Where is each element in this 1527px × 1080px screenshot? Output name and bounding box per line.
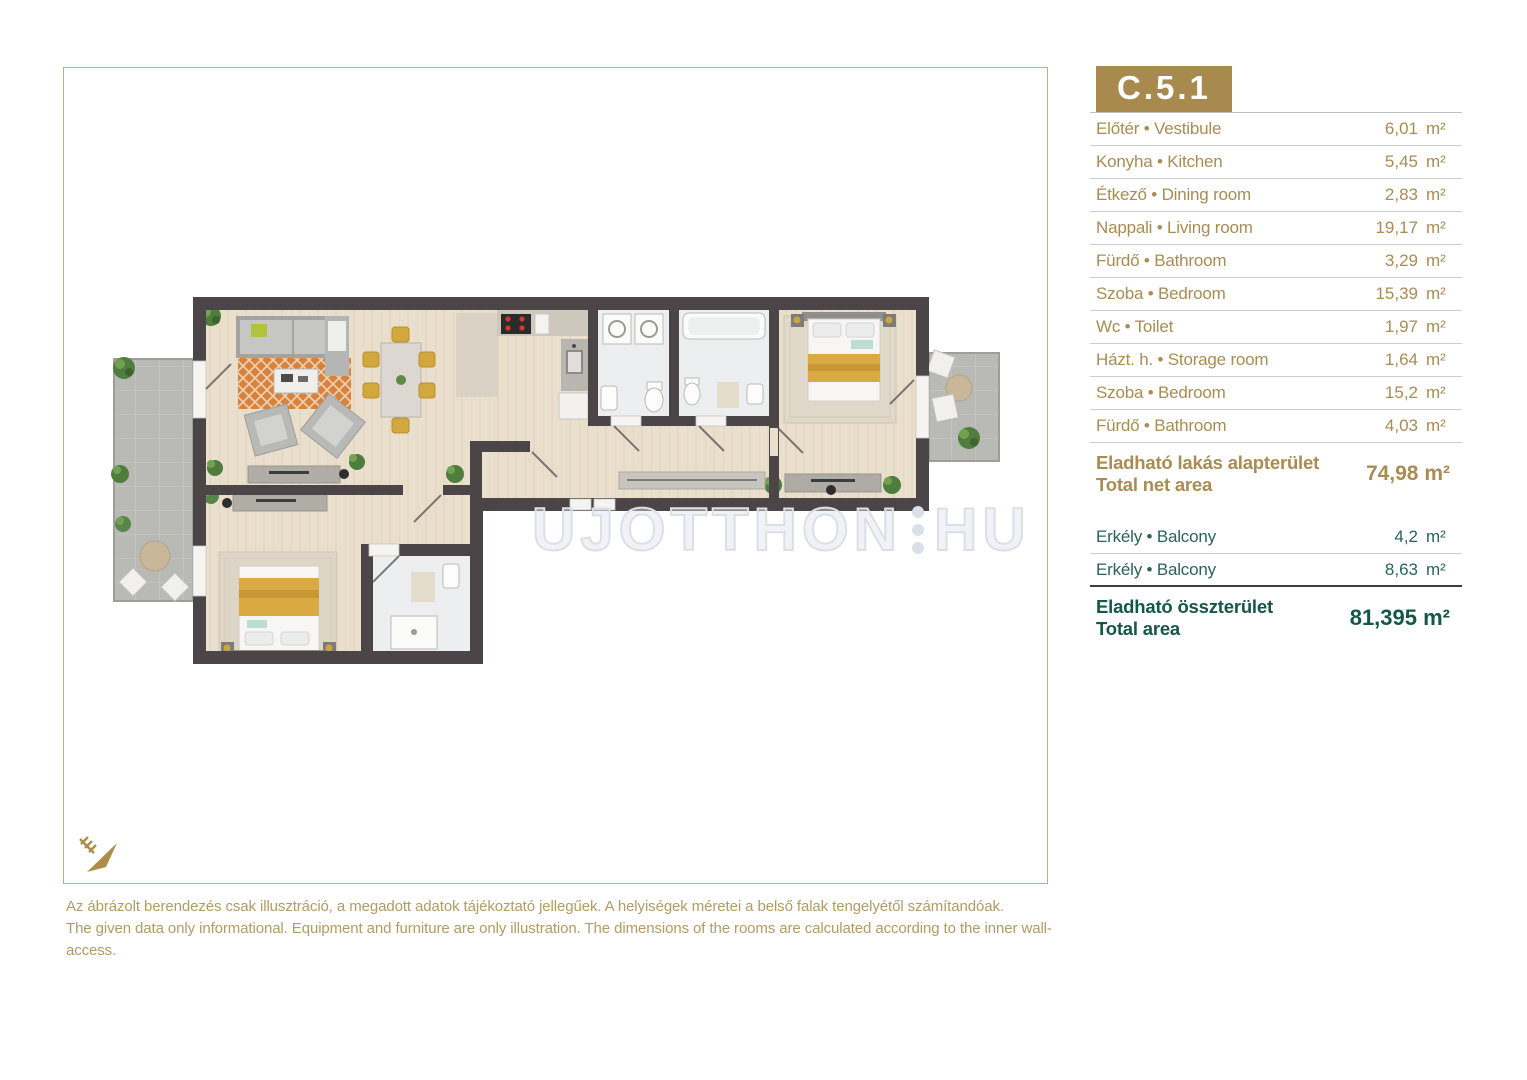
room-row: Étkező • Dining room 2,83 m² — [1090, 179, 1462, 212]
floor-plan — [111, 294, 1001, 674]
pillow — [813, 323, 841, 337]
coffee-table — [274, 369, 318, 393]
room-area: 4,03 m² — [1372, 416, 1462, 436]
chair — [419, 383, 435, 398]
room-label: Házt. h. • Storage room — [1090, 350, 1268, 370]
plant-icon — [446, 465, 464, 483]
plant-icon — [207, 460, 223, 476]
sink — [747, 384, 763, 404]
balcony-label: Erkély • Balcony — [1090, 527, 1216, 547]
balcony-right — [927, 350, 999, 461]
chair — [363, 383, 379, 398]
washer — [635, 314, 663, 344]
net-area-label-en: Total net area — [1096, 474, 1319, 496]
plant-icon — [349, 454, 365, 470]
disclaimer-line-hu: Az ábrázolt berendezés csak illusztráció… — [66, 896, 1076, 918]
chair — [392, 418, 409, 433]
room-label: Wc • Toilet — [1090, 317, 1173, 337]
north-arrow-icon — [74, 831, 126, 875]
entry-door — [570, 499, 591, 510]
desk-chair — [222, 498, 232, 508]
room-area: 1,97 m² — [1372, 317, 1462, 337]
unit-code-badge: C.5.1 — [1096, 66, 1232, 112]
area-panel: C.5.1 Előtér • Vestibule 6,01 m² Konyha … — [1090, 66, 1462, 651]
total-area-value: 81,395 m² — [1350, 605, 1450, 631]
room-row: Wc • Toilet 1,97 m² — [1090, 311, 1462, 344]
room-area: 15,2 m² — [1372, 383, 1462, 403]
stove — [501, 314, 531, 334]
balcony-area: 8,63 m² — [1372, 560, 1462, 580]
room-label: Szoba • Bedroom — [1090, 284, 1226, 304]
balcony-row: Erkély • Balcony 8,63 m² — [1090, 554, 1462, 587]
room-label: Nappali • Living room — [1090, 218, 1253, 238]
balcony-label: Erkély • Balcony — [1090, 560, 1216, 580]
room-row: Házt. h. • Storage room 1,64 m² — [1090, 344, 1462, 377]
pillow — [245, 632, 273, 645]
room-area: 5,45 m² — [1372, 152, 1462, 172]
room-area: 3,29 m² — [1372, 251, 1462, 271]
room-label: Fürdő • Bathroom — [1090, 251, 1226, 271]
room-label: Előtér • Vestibule — [1090, 119, 1221, 139]
room-label: Szoba • Bedroom — [1090, 383, 1226, 403]
room-label: Konyha • Kitchen — [1090, 152, 1223, 172]
plant-icon — [111, 465, 129, 483]
desk-chair — [826, 485, 836, 495]
desk — [248, 466, 340, 483]
total-area-label-hu: Eladható összterület — [1096, 596, 1273, 618]
balcony-row: Erkély • Balcony 4,2 m² — [1090, 521, 1462, 554]
sink — [443, 564, 459, 588]
fridge — [559, 393, 588, 419]
toilet — [645, 388, 663, 412]
bath-mat — [411, 572, 435, 602]
bath-mat — [717, 382, 739, 408]
room-area: 1,64 m² — [1372, 350, 1462, 370]
pillow — [281, 632, 309, 645]
toilet — [684, 383, 700, 405]
total-area-label-en: Total area — [1096, 618, 1273, 640]
balcony-list: Erkély • Balcony 4,2 m² Erkély • Balcony… — [1090, 521, 1462, 587]
entry-door — [594, 499, 615, 510]
net-area-block: Eladható lakás alapterület Total net are… — [1090, 443, 1462, 507]
room-area: 15,39 m² — [1372, 284, 1462, 304]
plant-icon — [115, 516, 131, 532]
room-row: Előtér • Vestibule 6,01 m² — [1090, 113, 1462, 146]
floor-plan-frame: UJOTTHON HU — [63, 67, 1048, 884]
room-area: 2,83 m² — [1372, 185, 1462, 205]
room-label: Fürdő • Bathroom — [1090, 416, 1226, 436]
sink — [601, 386, 617, 410]
chair — [363, 352, 379, 367]
room-row: Fürdő • Bathroom 3,29 m² — [1090, 245, 1462, 278]
plant-icon — [958, 427, 980, 449]
pillow — [251, 324, 267, 337]
room-label: Étkező • Dining room — [1090, 185, 1251, 205]
chair — [419, 352, 435, 367]
disclaimer-line-en: The given data only informational. Equip… — [66, 918, 1076, 962]
room-row: Konyha • Kitchen 5,45 m² — [1090, 146, 1462, 179]
room-row: Szoba • Bedroom 15,39 m² — [1090, 278, 1462, 311]
plant-icon — [113, 357, 135, 379]
room-row: Fürdő • Bathroom 4,03 m² — [1090, 410, 1462, 443]
room-area: 6,01 m² — [1372, 119, 1462, 139]
unit-code: C.5.1 — [1117, 69, 1211, 106]
room-row: Nappali • Living room 19,17 m² — [1090, 212, 1462, 245]
plant-icon — [883, 476, 901, 494]
washer — [603, 314, 631, 344]
pillow — [846, 323, 874, 337]
desk-chair — [339, 469, 349, 479]
disclaimer: Az ábrázolt berendezés csak illusztráció… — [66, 896, 1076, 962]
net-area-value: 74,98 m² — [1366, 462, 1450, 486]
desk — [233, 494, 327, 511]
room-list: Előtér • Vestibule 6,01 m² Konyha • Kitc… — [1090, 112, 1462, 443]
room-row: Szoba • Bedroom 15,2 m² — [1090, 377, 1462, 410]
room-area: 19,17 m² — [1372, 218, 1462, 238]
net-area-label-hu: Eladható lakás alapterület — [1096, 452, 1319, 474]
balcony-area: 4,2 m² — [1372, 527, 1462, 547]
page: UJOTTHON HU C.5.1 Előtér • Vestibule — [0, 0, 1527, 1080]
bedroom-wing — [219, 552, 337, 660]
total-area-block: Eladható összterület Total area 81,395 m… — [1090, 587, 1462, 651]
chair — [392, 327, 409, 342]
balcony-left — [111, 357, 193, 601]
